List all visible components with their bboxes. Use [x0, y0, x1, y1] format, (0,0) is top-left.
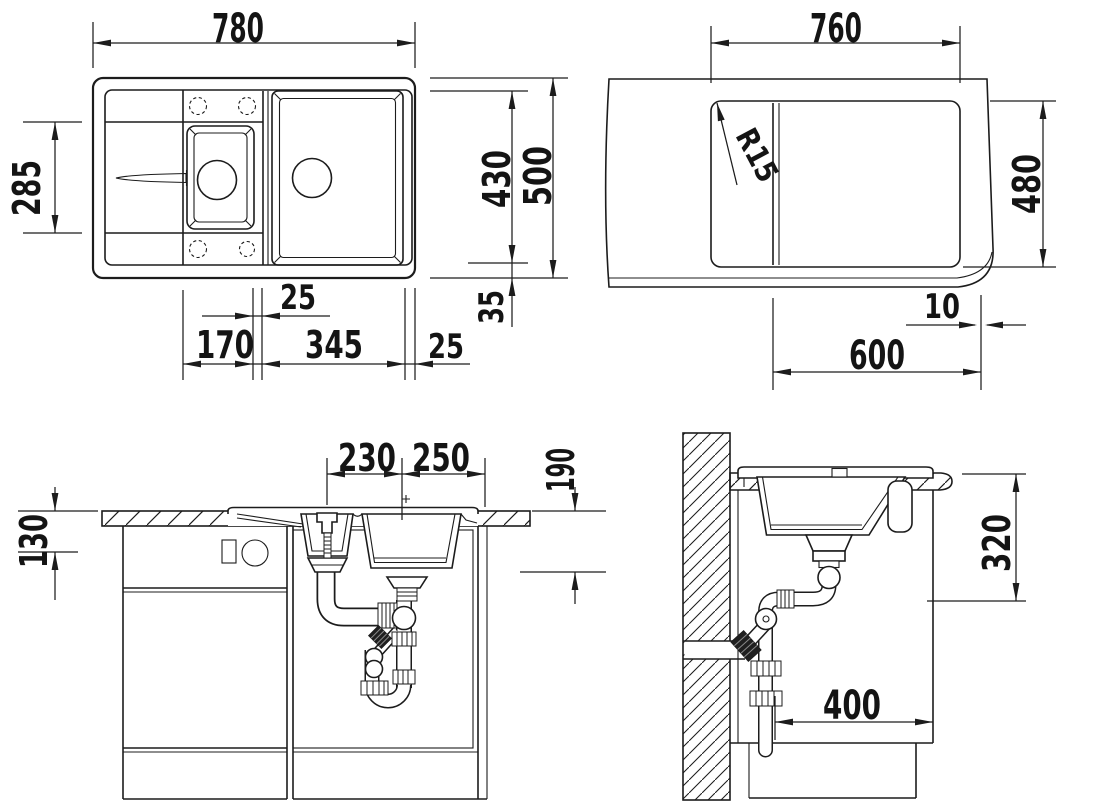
- overflow-duct: [888, 481, 912, 532]
- dim-label-345: 345: [305, 323, 363, 367]
- dim-label-780: 780: [212, 6, 264, 52]
- sink-side-section: [738, 467, 933, 535]
- dim-label-500: 500: [516, 146, 560, 206]
- dim-overall-width: 780: [93, 6, 415, 68]
- dim-label-230: 230: [338, 436, 396, 480]
- appliance-knob: [242, 540, 268, 566]
- dim-label-170: 170: [196, 323, 254, 367]
- trap-union-side: [818, 567, 840, 589]
- dim-depths: 430 500 35: [430, 78, 568, 327]
- dim-clearance: 320: [927, 474, 1026, 601]
- dim-label-250: 250: [412, 436, 470, 480]
- sink-technical-drawing: 780 285 430 500 35: [0, 0, 1100, 810]
- dim-depth-below-top: 190: [520, 448, 606, 604]
- dim-left-depth: 285: [5, 122, 82, 233]
- dim-label-285: 285: [5, 160, 49, 216]
- wall-section: [683, 433, 730, 800]
- dim-label-25-divider: 25: [280, 278, 316, 318]
- dim-label-320: 320: [975, 514, 1019, 572]
- centerline-mark: [402, 495, 410, 503]
- dim-label-130: 130: [12, 514, 56, 568]
- bowl-side-section: [757, 477, 905, 535]
- dim-label-760: 760: [810, 6, 862, 52]
- dim-label-25-edge: 25: [428, 327, 464, 367]
- dim-label-10: 10: [924, 287, 960, 327]
- trap-union: [393, 607, 416, 630]
- dim-label-190: 190: [539, 448, 583, 492]
- dim-label-35: 35: [472, 290, 512, 324]
- dim-apron-height: 130: [12, 487, 98, 600]
- dim-label-430: 430: [475, 150, 519, 208]
- appliance-switch: [222, 540, 236, 563]
- dim-widths: 25 170 345 25: [183, 278, 470, 380]
- dim-cutout-width: 760: [711, 6, 960, 83]
- side-section-view: 320 400: [683, 433, 1026, 800]
- front-section-view: 230 250 190 130: [12, 436, 606, 799]
- cleanout-eye: [756, 609, 777, 630]
- dim-label-400: 400: [823, 683, 881, 729]
- drawing-canvas: 780 285 430 500 35: [0, 0, 1100, 810]
- worktop-outline: [606, 79, 993, 287]
- cutout-view: 760 R15 480 10 600: [606, 6, 1056, 390]
- plan-view: 780 285 430 500 35: [5, 6, 568, 380]
- dim-label-600: 600: [849, 333, 905, 379]
- dim-trap-to-front: 400: [775, 683, 933, 740]
- dim-label-480: 480: [1005, 154, 1049, 214]
